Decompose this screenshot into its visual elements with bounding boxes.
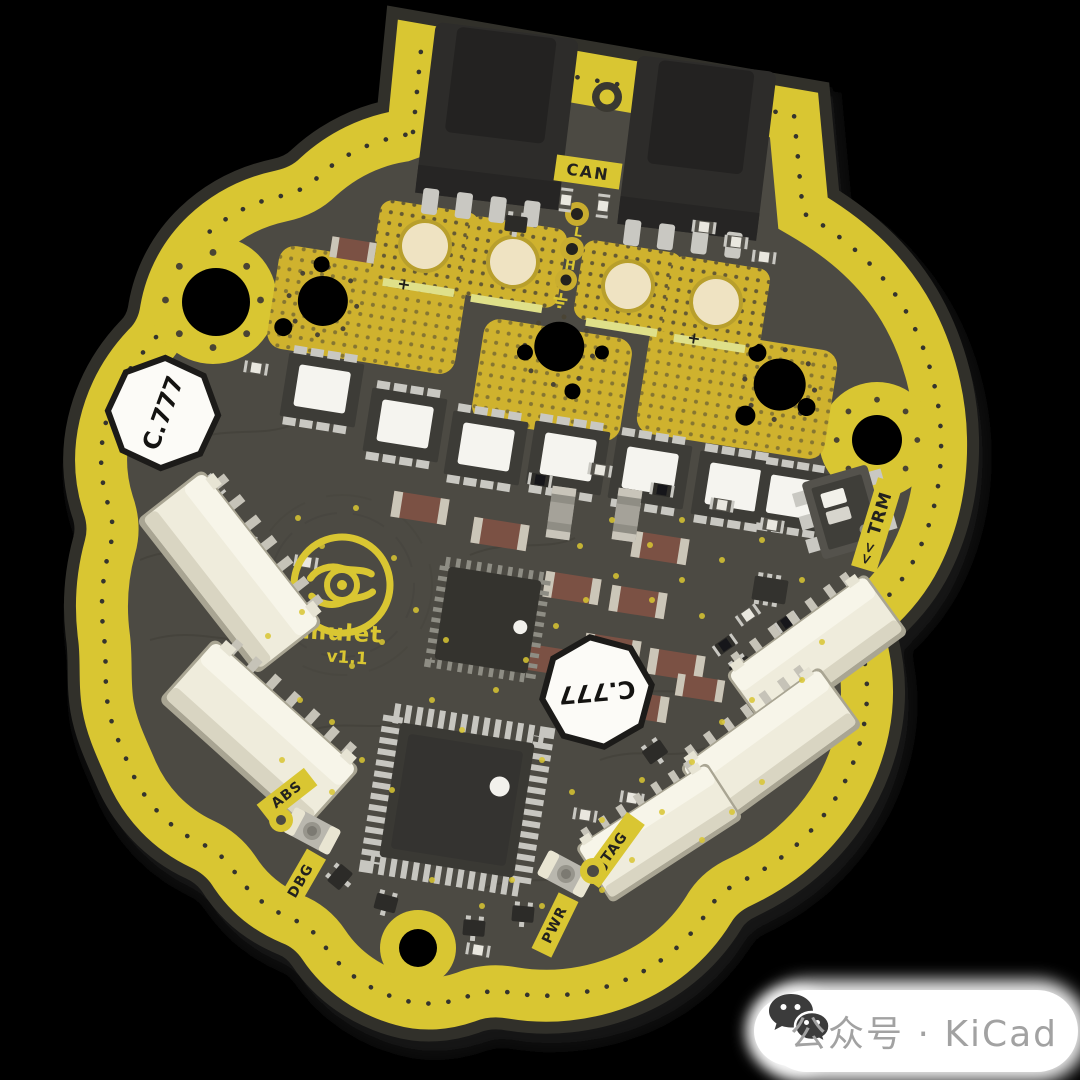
board-version: v1.1	[326, 647, 368, 670]
mosfet	[442, 403, 530, 494]
can-connector	[413, 22, 579, 230]
mosfet	[361, 380, 449, 471]
mosfet	[278, 345, 366, 436]
power-pad	[659, 255, 771, 356]
watermark-text: 公众号 · KiCad	[790, 1005, 1058, 1057]
pcb-board-render: + + L H	[0, 0, 1080, 1080]
pcb-render-scene: + + L H	[0, 0, 1080, 1080]
watermark: 公众号 · KiCad	[766, 990, 1078, 1072]
